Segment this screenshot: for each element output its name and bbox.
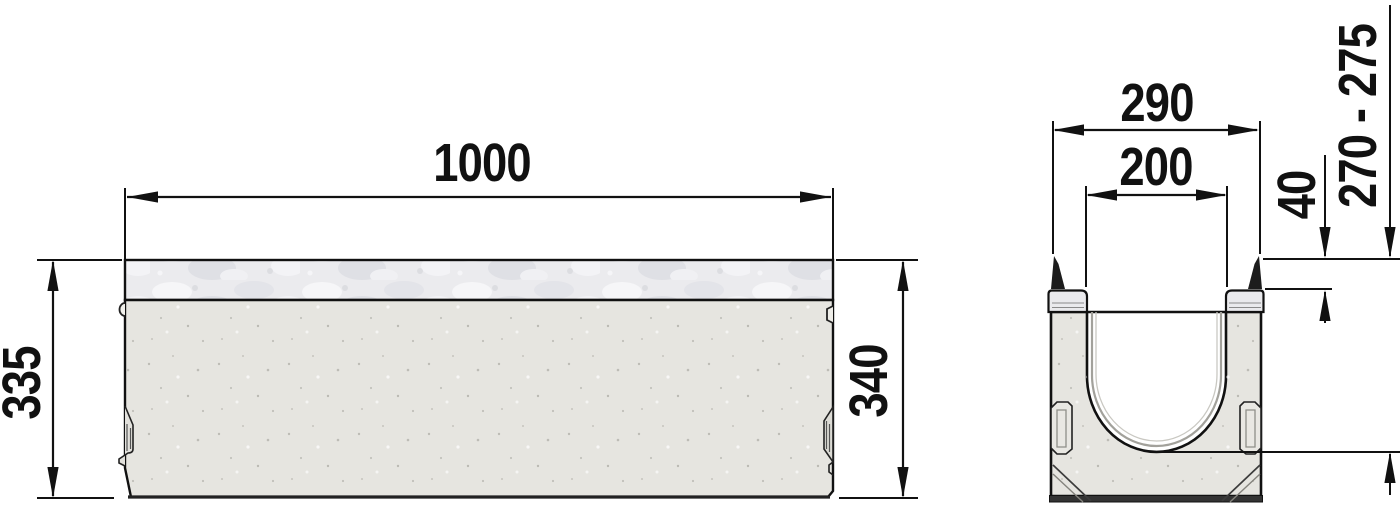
dim-label-outer-width: 290 — [1120, 76, 1193, 130]
arrow-left — [1086, 189, 1117, 200]
arrow-up — [47, 260, 58, 291]
technical-drawing-canvas: 1000 335 340 290 200 40 270 - 275 — [0, 0, 1400, 506]
arrow-right — [1196, 189, 1227, 200]
inner-liner-highlight — [1096, 312, 1217, 441]
section-speckle-texture — [1051, 312, 1261, 496]
arrow-down — [1319, 227, 1330, 258]
arrow-left — [127, 191, 158, 202]
dim-label-height-left: 335 — [0, 346, 49, 419]
arrow-down — [1384, 227, 1395, 258]
dim-label-height-right: 340 — [842, 344, 896, 417]
arrow-up — [897, 260, 908, 291]
dimension-200 — [1086, 186, 1227, 287]
dim-label-inner-width: 200 — [1119, 140, 1192, 194]
galvanized-edge-strip — [125, 260, 833, 300]
dim-label-height-range: 270 - 275 — [1331, 24, 1385, 208]
side-knob-left — [1051, 402, 1072, 454]
concrete-speckle-texture — [127, 302, 831, 495]
left-edge-notch — [120, 303, 125, 316]
arrow-up — [1319, 290, 1330, 321]
arrow-down — [47, 467, 58, 498]
section-extension-lines — [1159, 259, 1400, 452]
anchor-tab-left — [1051, 256, 1065, 289]
side-elevation-view — [37, 188, 918, 498]
right-edge-notch — [827, 306, 833, 323]
side-knob-right — [1240, 402, 1261, 454]
arrow-right — [800, 191, 831, 202]
dim-label-length: 1000 — [433, 136, 531, 190]
arrow-right — [1228, 124, 1259, 135]
arrow-up — [1384, 452, 1395, 483]
arrow-left — [1053, 124, 1084, 135]
anchor-tab-right — [1248, 256, 1262, 289]
edge-rail-left — [1049, 256, 1088, 312]
dim-label-edge-depth: 40 — [1270, 171, 1324, 220]
arrow-down — [897, 467, 908, 498]
inner-liner-line — [1092, 312, 1221, 446]
edge-rail-right — [1226, 256, 1264, 312]
dimension-1000 — [125, 188, 833, 259]
